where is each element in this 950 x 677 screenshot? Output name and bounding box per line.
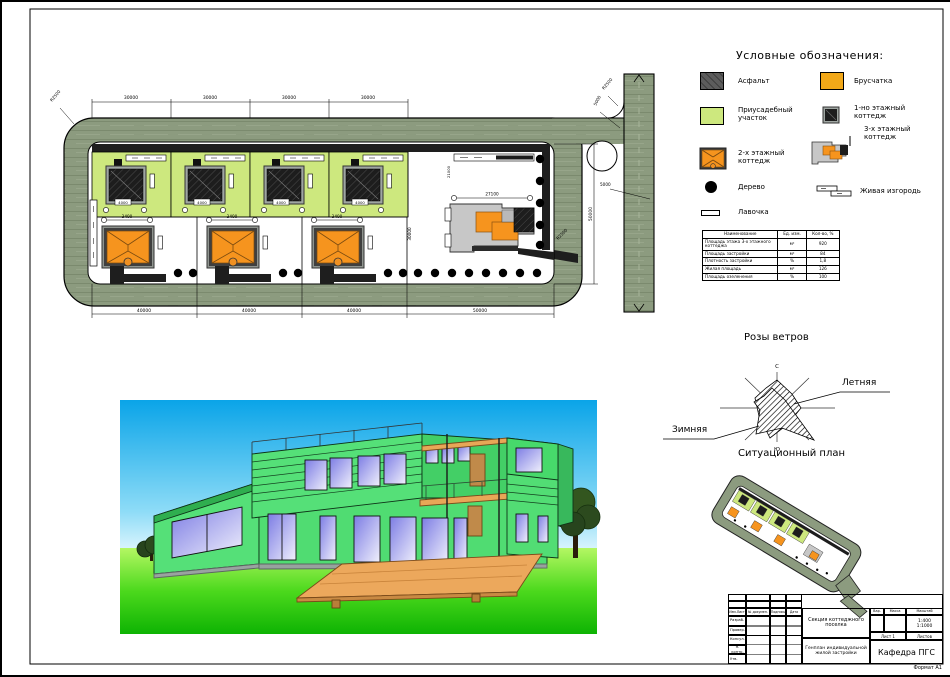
road-fillet xyxy=(608,102,624,118)
sheets-total: Листов xyxy=(906,632,943,640)
legend-label-plot: Приусадебный участок xyxy=(738,106,812,122)
tb-row-label: Провер. xyxy=(728,626,746,636)
road-width-label: 5000 xyxy=(592,94,602,106)
table-cell: м² xyxy=(778,238,806,250)
asphalt-strip xyxy=(92,144,550,152)
table-cell: 84 xyxy=(806,250,839,258)
legend-label-tree: Дерево xyxy=(738,183,812,191)
porch xyxy=(445,208,451,221)
dim-lines-top xyxy=(92,99,408,118)
two-storey-icon xyxy=(698,146,728,172)
table-cell: Площадь этажа 3-х этажного коттеджа xyxy=(703,238,778,250)
bench-icon xyxy=(701,210,720,216)
site-plan: 27100 30000 30000 30000 30000 xyxy=(49,74,654,318)
legend-label-asphalt: Асфальт xyxy=(738,77,812,85)
dim-top: 30000 xyxy=(203,95,217,101)
three-storey-icon xyxy=(810,136,854,166)
table-cell: м² xyxy=(778,250,806,258)
house-render xyxy=(120,400,600,634)
table-cell: Жилая площадь xyxy=(703,265,778,273)
department-name: Кафедра ПГС xyxy=(870,640,943,664)
tb-col-header: Дата xyxy=(786,608,802,616)
tb-row-label: Утв. xyxy=(728,654,746,664)
table-header: Ед. изм. xyxy=(778,231,806,239)
radius-label: R2500 xyxy=(601,77,614,91)
summer-label: Летняя xyxy=(842,378,876,388)
table-cell: Площадь озеленения xyxy=(703,273,778,281)
paving-swatch xyxy=(820,72,844,90)
situation-plan-title: Ситуационный план xyxy=(738,448,845,459)
axis-marker xyxy=(527,195,532,200)
tb-col-header: Подпись xyxy=(770,608,786,616)
tb-row-label: Н. контр. xyxy=(728,645,746,655)
table-cell: м² xyxy=(778,265,806,273)
radius-label: R2500 xyxy=(49,89,62,103)
table-cell: 1,8 xyxy=(806,258,839,266)
dim-top: 30000 xyxy=(361,95,375,101)
table-row: Жилая площадь м² 126 xyxy=(703,265,840,273)
dim-depth: 30000 xyxy=(407,227,412,241)
tb-col-header: № докумен. xyxy=(746,608,770,616)
legend-label-paving: Брусчатка xyxy=(854,77,928,85)
table-cell: 100 xyxy=(806,273,839,281)
tb-row-label: Разраб. xyxy=(728,616,746,626)
dim-bottom-right: 50000 xyxy=(473,308,487,314)
table-header: Наименование xyxy=(703,231,778,239)
tb-right-header: Масса xyxy=(884,608,906,615)
road-connector xyxy=(552,118,624,144)
doc-title: Секция коттеджного поселка xyxy=(802,608,870,638)
legend-label-bench: Лавочка xyxy=(738,208,812,216)
tb-col-header: Изм.Лист xyxy=(728,608,746,616)
north-label: С xyxy=(775,364,779,370)
dim-bottom: 40000 xyxy=(242,308,256,314)
indicators-table: Наименование Ед. изм. Кол-во, % Площадь … xyxy=(702,230,840,281)
tb-right-header: Вар. xyxy=(870,608,884,615)
format-note: Формат А1 xyxy=(864,665,942,671)
legend-label-3storey: 3-х этажный коттедж xyxy=(864,125,930,141)
table-cell: % xyxy=(778,258,806,266)
legend-label-2storey: 2-х этажный коттедж xyxy=(738,149,812,165)
tb-right-header: Масштаб xyxy=(906,608,943,615)
table-cell: % xyxy=(778,273,806,281)
asphalt-swatch xyxy=(700,72,724,90)
legend-title: Условные обозначения: xyxy=(736,49,884,62)
table-row: Плотность застройки % 1,8 xyxy=(703,258,840,266)
table-row: Площадь этажа 3-х этажного коттеджа м² 9… xyxy=(703,238,840,250)
summer-leader xyxy=(794,392,890,404)
drawing-sheet: 4000 3400 xyxy=(0,0,950,677)
table-header: Кол-во, % xyxy=(806,231,839,239)
winter-label: Зимняя xyxy=(672,425,707,435)
tb-row-label: Консул. xyxy=(728,635,746,645)
axis-marker xyxy=(451,195,456,200)
dim-right-v: 50000 xyxy=(588,207,594,221)
wind-rose-title: Розы ветров xyxy=(744,332,809,343)
table-row: Площадь озеленения % 100 xyxy=(703,273,840,281)
hedge-icon xyxy=(816,184,856,198)
plot-swatch xyxy=(700,107,724,125)
dim-bottom: 40000 xyxy=(347,308,361,314)
road-fillet xyxy=(587,141,617,171)
doc-subtitle: Генплан индивидуальной жилой застройки xyxy=(802,638,870,664)
dim-hedge-v: 21000 xyxy=(446,165,451,178)
dim-cottage3: 27100 xyxy=(485,192,499,197)
dim-top: 30000 xyxy=(282,95,296,101)
sheet-number: Лист 1 xyxy=(870,632,906,640)
table-cell: 126 xyxy=(806,265,839,273)
table-row: Площадь застройки м² 84 xyxy=(703,250,840,258)
legend-label-1storey: 1-но этажный коттедж xyxy=(854,104,928,120)
porch xyxy=(445,234,451,247)
table-cell: Плотность застройки xyxy=(703,258,778,266)
dim-bottom: 40000 xyxy=(137,308,151,314)
table-cell: 920 xyxy=(806,238,839,250)
dim-top: 30000 xyxy=(124,95,138,101)
scale-value: 1:1000 xyxy=(917,624,933,629)
tree-icon xyxy=(705,181,717,193)
table-cell: Площадь застройки xyxy=(703,250,778,258)
road-width-label: 5000 xyxy=(600,182,611,187)
legend-label-hedge: Живая изгородь xyxy=(860,187,934,195)
one-storey-icon xyxy=(822,106,840,124)
